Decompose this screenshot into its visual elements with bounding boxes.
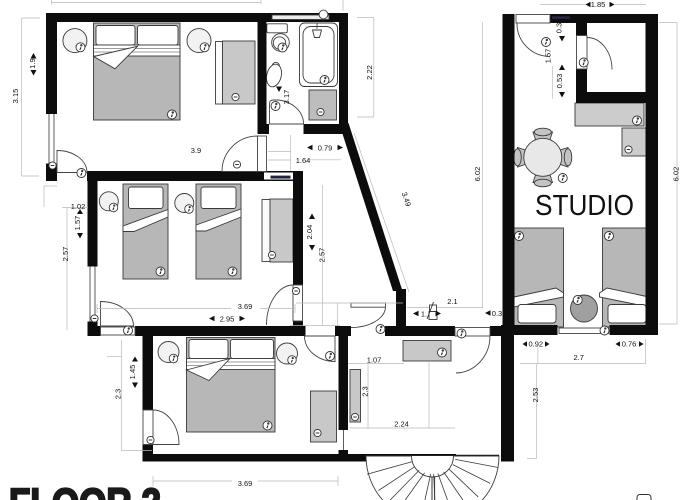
- svg-text:2.24: 2.24: [394, 420, 409, 429]
- svg-text:2.95: 2.95: [220, 315, 235, 324]
- svg-text:2.7: 2.7: [573, 353, 583, 362]
- svg-text:STUDIO: STUDIO: [535, 190, 634, 222]
- svg-text:2.53: 2.53: [531, 388, 540, 403]
- svg-text:FLOOR 2: FLOOR 2: [9, 480, 161, 500]
- svg-text:2.3: 2.3: [114, 389, 123, 399]
- svg-text:2.3: 2.3: [361, 386, 370, 396]
- svg-text:2.57: 2.57: [61, 247, 70, 262]
- svg-text:1.: 1.: [421, 310, 427, 319]
- svg-text:0.3: 0.3: [492, 309, 502, 318]
- svg-text:1.57: 1.57: [73, 216, 82, 231]
- svg-text:1.57: 1.57: [544, 49, 553, 64]
- svg-text:0.92: 0.92: [528, 340, 543, 349]
- svg-text:0.79: 0.79: [318, 144, 333, 153]
- svg-text:1.85: 1.85: [591, 0, 606, 9]
- svg-text:6.02: 6.02: [473, 167, 482, 182]
- svg-text:3.69: 3.69: [238, 302, 253, 311]
- svg-text:2.22: 2.22: [365, 65, 374, 80]
- svg-text:2.04: 2.04: [305, 225, 314, 240]
- svg-text:2.1: 2.1: [447, 297, 457, 306]
- svg-text:2.57: 2.57: [318, 248, 327, 263]
- svg-text:0.76: 0.76: [622, 340, 637, 349]
- svg-text:3.69: 3.69: [238, 479, 253, 488]
- svg-text:0.3: 0.3: [555, 23, 564, 33]
- svg-text:1.45: 1.45: [128, 365, 137, 380]
- svg-text:1.02: 1.02: [71, 202, 86, 211]
- svg-text:1.64: 1.64: [296, 156, 311, 165]
- svg-text:6.02: 6.02: [672, 167, 681, 182]
- svg-text:0.53: 0.53: [555, 74, 564, 89]
- svg-text:3.15: 3.15: [11, 89, 20, 104]
- svg-text:1.07: 1.07: [367, 356, 382, 365]
- svg-text:3.9: 3.9: [191, 146, 201, 155]
- svg-text:1.9: 1.9: [28, 58, 37, 68]
- svg-text:3.17: 3.17: [282, 90, 291, 105]
